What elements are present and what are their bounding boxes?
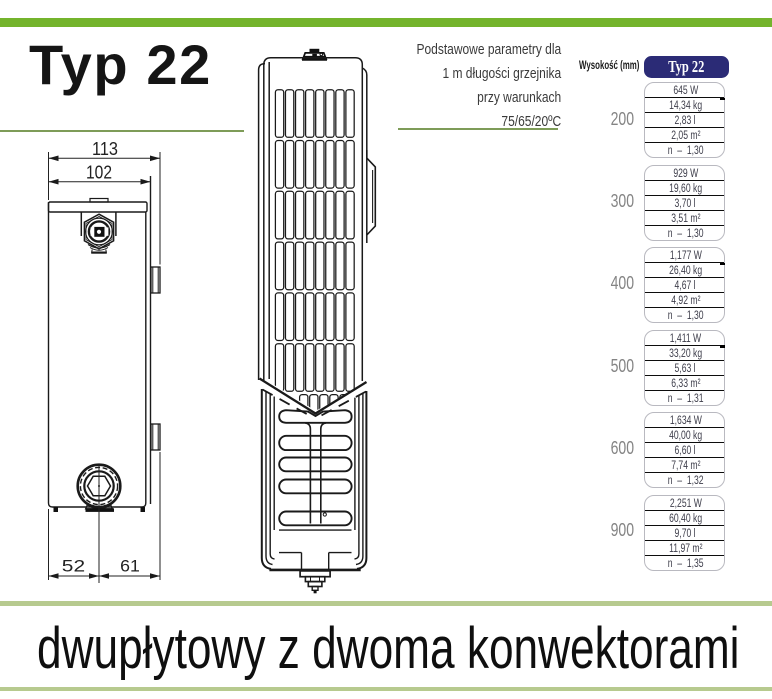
svg-text:102: 102 bbox=[86, 163, 112, 183]
svg-text:52: 52 bbox=[62, 558, 85, 576]
svg-text:113: 113 bbox=[92, 139, 118, 159]
svg-text:61: 61 bbox=[120, 558, 140, 576]
